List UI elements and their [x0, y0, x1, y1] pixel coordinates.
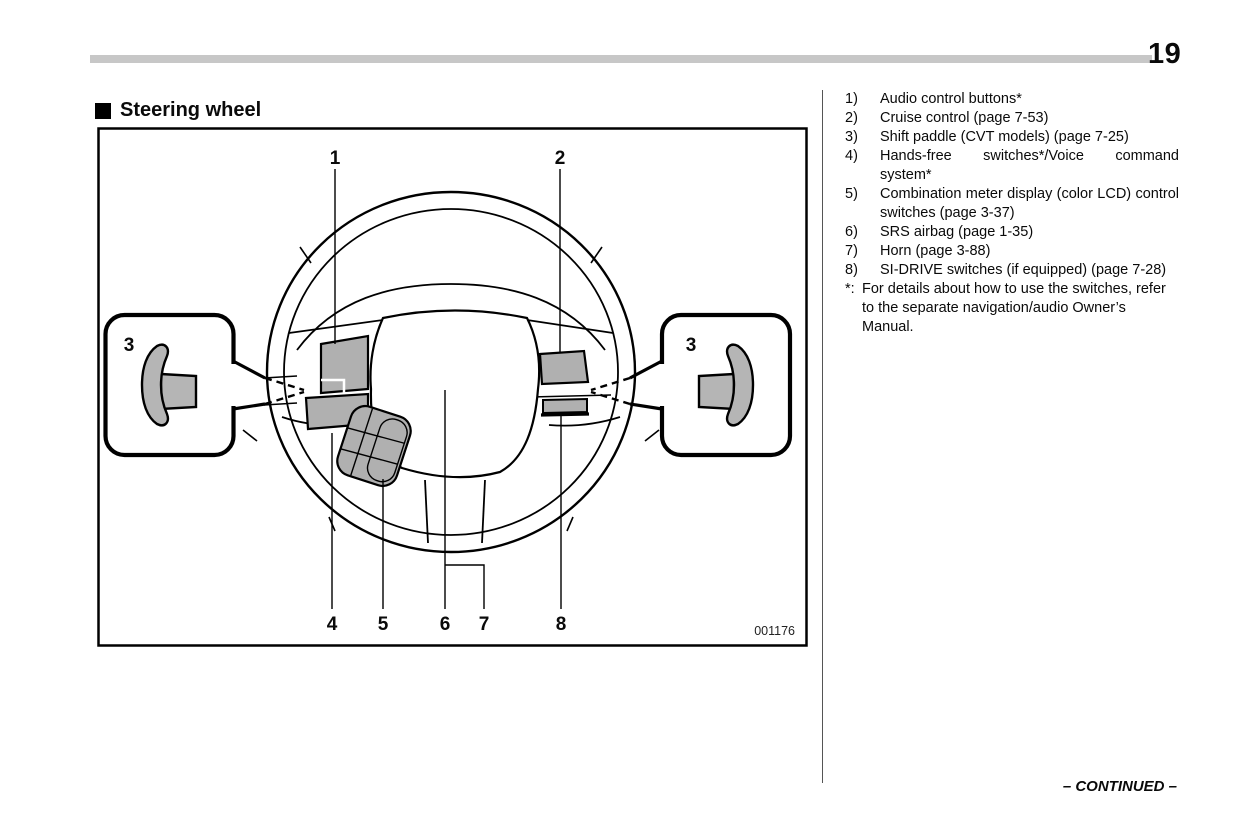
- callout-label-3-right: 3: [686, 335, 697, 356]
- legend-item-text: Combination meter display (color LCD) co…: [880, 185, 1179, 223]
- section-title: Steering wheel: [120, 99, 261, 122]
- callout-notch-left: [229, 364, 238, 406]
- column-divider: [822, 90, 823, 783]
- legend-item-text: Cruise control (page 7-53): [880, 109, 1179, 128]
- si-drive-switch-panel: [543, 399, 587, 413]
- legend-item-number: 3): [845, 128, 880, 147]
- legend-item-text: SI-DRIVE switches (if equipped) (page 7-…: [880, 261, 1179, 280]
- legend-item-4: 4) Hands-free switches*/Voice command sy…: [845, 147, 1179, 185]
- legend-item-number: 4): [845, 147, 880, 185]
- section-heading: Steering wheel: [95, 99, 261, 122]
- legend-item-6: 6) SRS airbag (page 1-35): [845, 223, 1179, 242]
- legend-item-7: 7) Horn (page 3-88): [845, 242, 1179, 261]
- callout-label-7: 7: [479, 614, 490, 635]
- header-rule: [90, 55, 1152, 63]
- legend-item-number: 7): [845, 242, 880, 261]
- legend-item-8: 8) SI-DRIVE switches (if equipped) (page…: [845, 261, 1179, 280]
- callout-label-3-left: 3: [124, 335, 135, 356]
- legend-item-text: Horn (page 3-88): [880, 242, 1179, 261]
- legend-item-3: 3) Shift paddle (CVT models) (page 7-25): [845, 128, 1179, 147]
- legend-item-number: 1): [845, 90, 880, 109]
- callout-notch-right: [657, 364, 666, 406]
- legend-list: 1) Audio control buttons* 2) Cruise cont…: [845, 90, 1179, 337]
- callout-label-8: 8: [556, 614, 567, 635]
- legend-item-1: 1) Audio control buttons*: [845, 90, 1179, 109]
- steering-wheel-diagram: 1 2 3 3 4 5 6 7 8 001176: [97, 127, 808, 647]
- legend-item-5: 5) Combination meter display (color LCD)…: [845, 185, 1179, 223]
- figure-code: 001176: [754, 624, 795, 638]
- callout-label-4: 4: [327, 614, 338, 635]
- steering-wheel-figure: 1 2 3 3 4 5 6 7 8 001176: [97, 127, 808, 652]
- legend-item-text: Hands-free switches*/Voice command syste…: [880, 147, 1179, 185]
- section-square-bullet-icon: [95, 103, 111, 119]
- cruise-control-panel: [540, 351, 588, 384]
- legend-item-text: Audio control buttons*: [880, 90, 1179, 109]
- legend-item-number: 8): [845, 261, 880, 280]
- callout-label-5: 5: [378, 614, 389, 635]
- callout-label-2: 2: [555, 148, 566, 169]
- page-number: 19: [1148, 38, 1181, 71]
- si-drive-panel-edge: [541, 414, 589, 415]
- footnote-text: For details about how to use the switche…: [862, 280, 1179, 337]
- footnote-marker: *:: [845, 280, 862, 337]
- callout-label-1: 1: [330, 148, 341, 169]
- legend-item-number: 6): [845, 223, 880, 242]
- callout-label-6: 6: [440, 614, 451, 635]
- legend-item-number: 2): [845, 109, 880, 128]
- legend-item-2: 2) Cruise control (page 7-53): [845, 109, 1179, 128]
- legend-item-number: 5): [845, 185, 880, 223]
- continued-label: – CONTINUED –: [1063, 778, 1177, 795]
- legend-footnote: *: For details about how to use the swit…: [845, 280, 1179, 337]
- legend-item-text: SRS airbag (page 1-35): [880, 223, 1179, 242]
- legend-item-text: Shift paddle (CVT models) (page 7-25): [880, 128, 1179, 147]
